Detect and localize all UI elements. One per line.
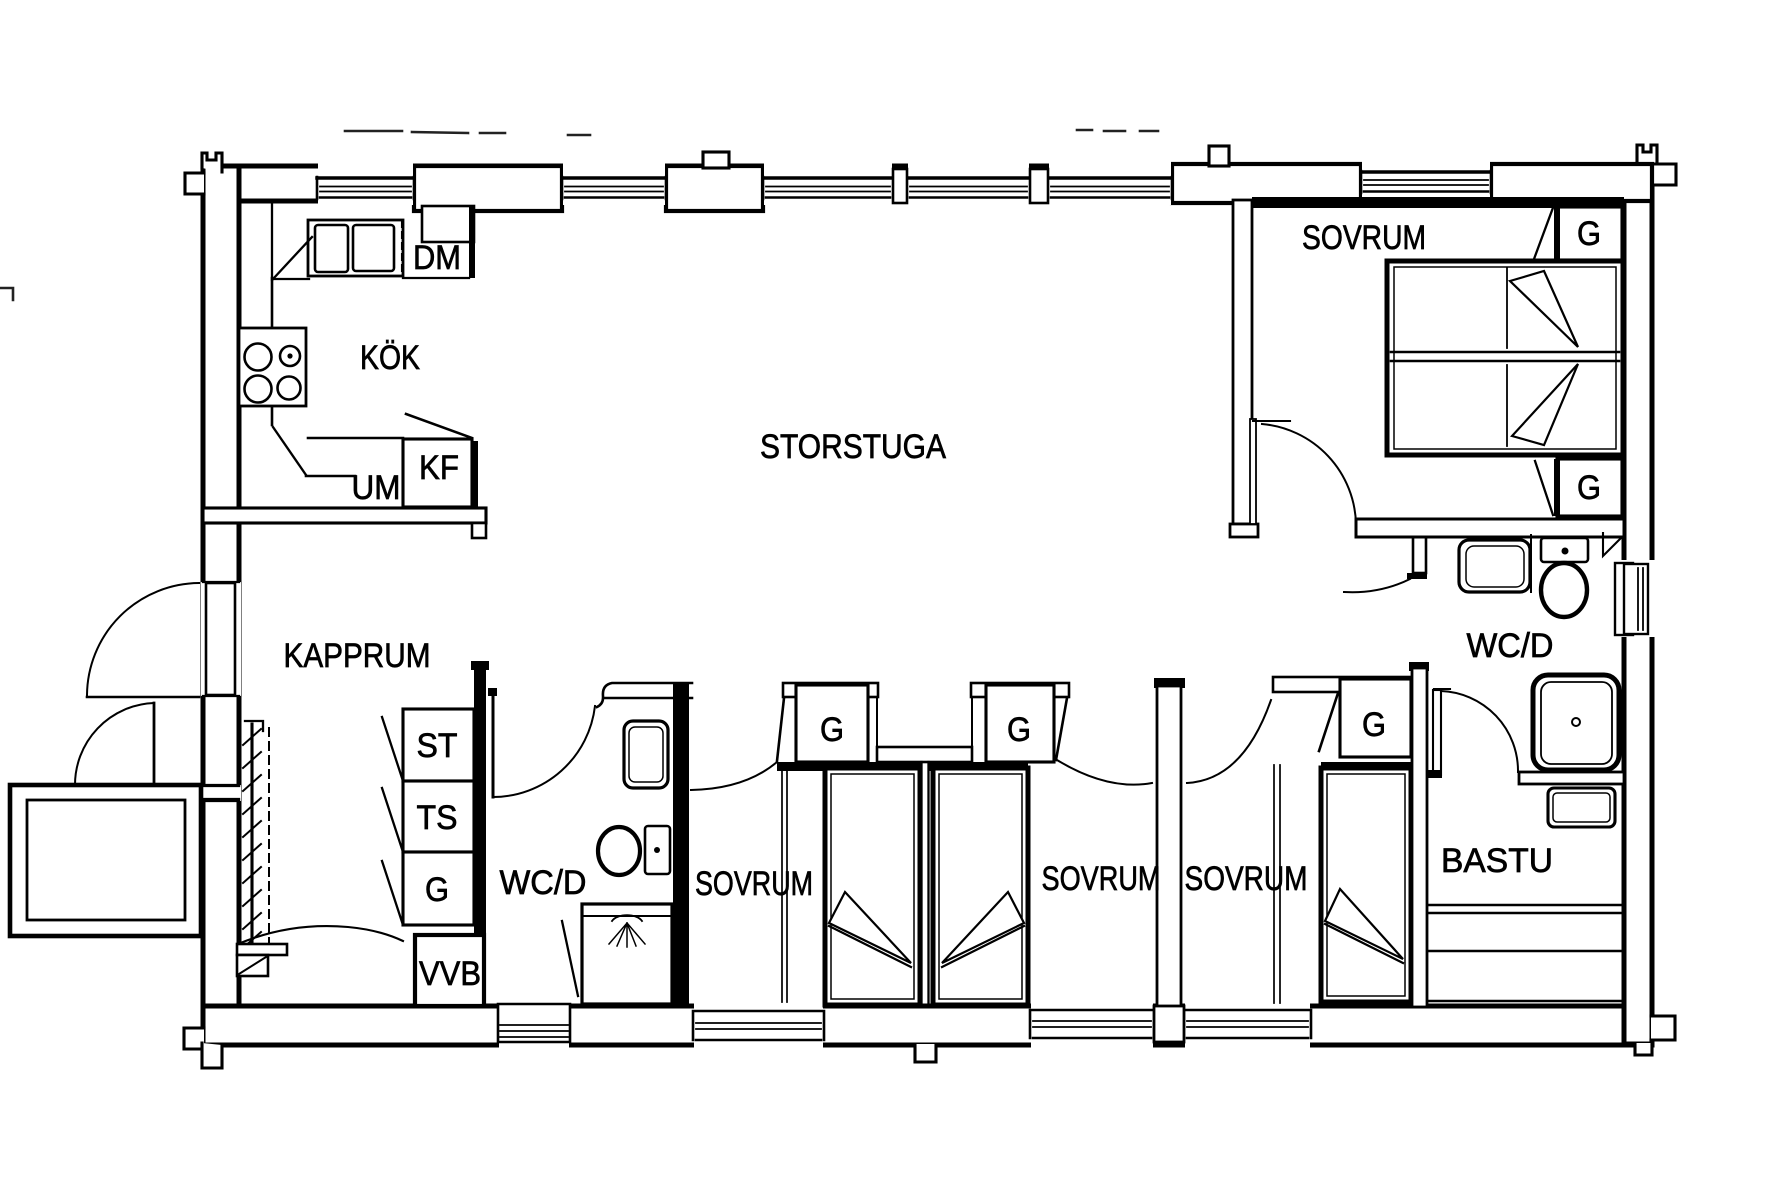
svg-text:STORSTUGA: STORSTUGA [760,428,946,466]
svg-text:G: G [1577,469,1601,507]
svg-text:G: G [1362,706,1386,744]
svg-text:TS: TS [417,799,458,837]
svg-text:UM: UM [352,469,401,507]
svg-text:VVB: VVB [419,955,481,993]
svg-text:SOVRUM: SOVRUM [1185,860,1308,898]
svg-text:BASTU: BASTU [1441,842,1553,880]
svg-text:SOVRUM: SOVRUM [695,865,813,903]
svg-text:G: G [425,871,449,909]
svg-text:KAPPRUM: KAPPRUM [284,637,431,675]
svg-text:KF: KF [419,449,459,487]
svg-text:SOVRUM: SOVRUM [1302,219,1426,257]
svg-text:G: G [1007,711,1031,749]
svg-text:KÖK: KÖK [360,339,420,377]
svg-text:G: G [1577,215,1601,253]
svg-text:G: G [820,711,844,749]
svg-text:WC/D: WC/D [1467,627,1554,665]
svg-text:SOVRUM: SOVRUM [1042,860,1161,898]
svg-text:ST: ST [417,727,458,765]
svg-text:WC/D: WC/D [500,864,587,902]
svg-text:DM: DM [413,239,461,277]
